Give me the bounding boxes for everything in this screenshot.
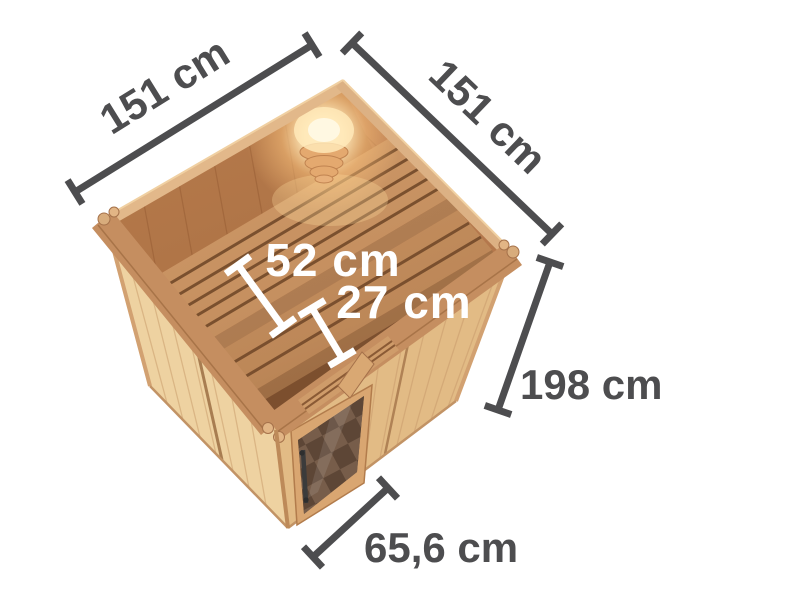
door-handle — [303, 450, 306, 503]
dimension-height-tick-end — [485, 405, 511, 414]
dimension-height-label: 198 cm — [520, 361, 662, 408]
rim-cap-left-2 — [109, 207, 119, 217]
dimension-door-width-label: 65,6 cm — [364, 524, 518, 571]
dimension-bench-step-label: 27 cm — [336, 276, 471, 328]
sauna-product-diagram: 151 cm 151 cm 198 cm 65,6 cm 52 cm 27 cm — [0, 0, 800, 600]
door-handle-mount-top — [299, 450, 304, 455]
dimension-height-tick-start — [537, 257, 563, 266]
dimension-width-right-label: 151 cm — [420, 50, 555, 182]
dimension-width-left-label: 151 cm — [91, 28, 237, 143]
sauna-illustration: 151 cm 151 cm 198 cm 65,6 cm 52 cm 27 cm — [0, 0, 800, 600]
door-handle-mount-bottom — [303, 497, 308, 502]
lamp-shade-ring-4 — [315, 175, 333, 183]
rim-cap-right — [507, 246, 519, 258]
rim-cap-left — [98, 213, 110, 225]
rim-cap-front — [263, 423, 274, 434]
rim-cap-right-2 — [499, 240, 509, 250]
lamp-core — [308, 118, 340, 142]
